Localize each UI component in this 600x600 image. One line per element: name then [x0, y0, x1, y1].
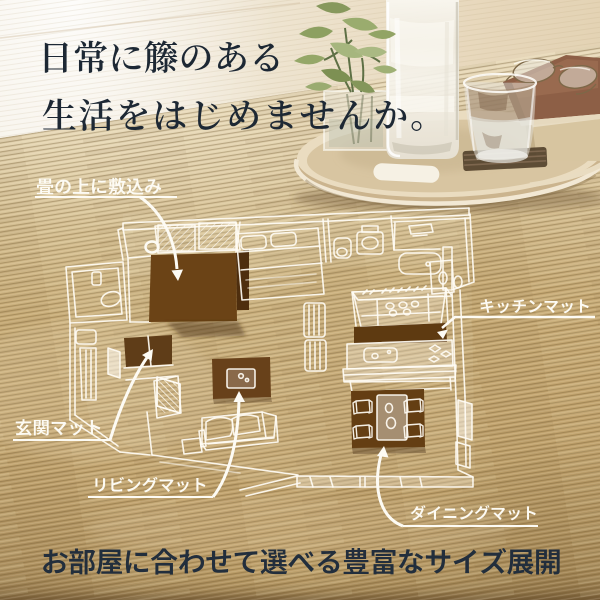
svg-text:畳の上に敷込み: 畳の上に敷込み — [36, 173, 162, 199]
svg-text:リビングマット: リビングマット — [92, 472, 208, 496]
svg-text:玄関マット: 玄関マット — [15, 415, 103, 440]
svg-text:ダイニングマット: ダイニングマット — [410, 500, 538, 524]
svg-text:キッチンマット: キッチンマット — [479, 293, 591, 317]
